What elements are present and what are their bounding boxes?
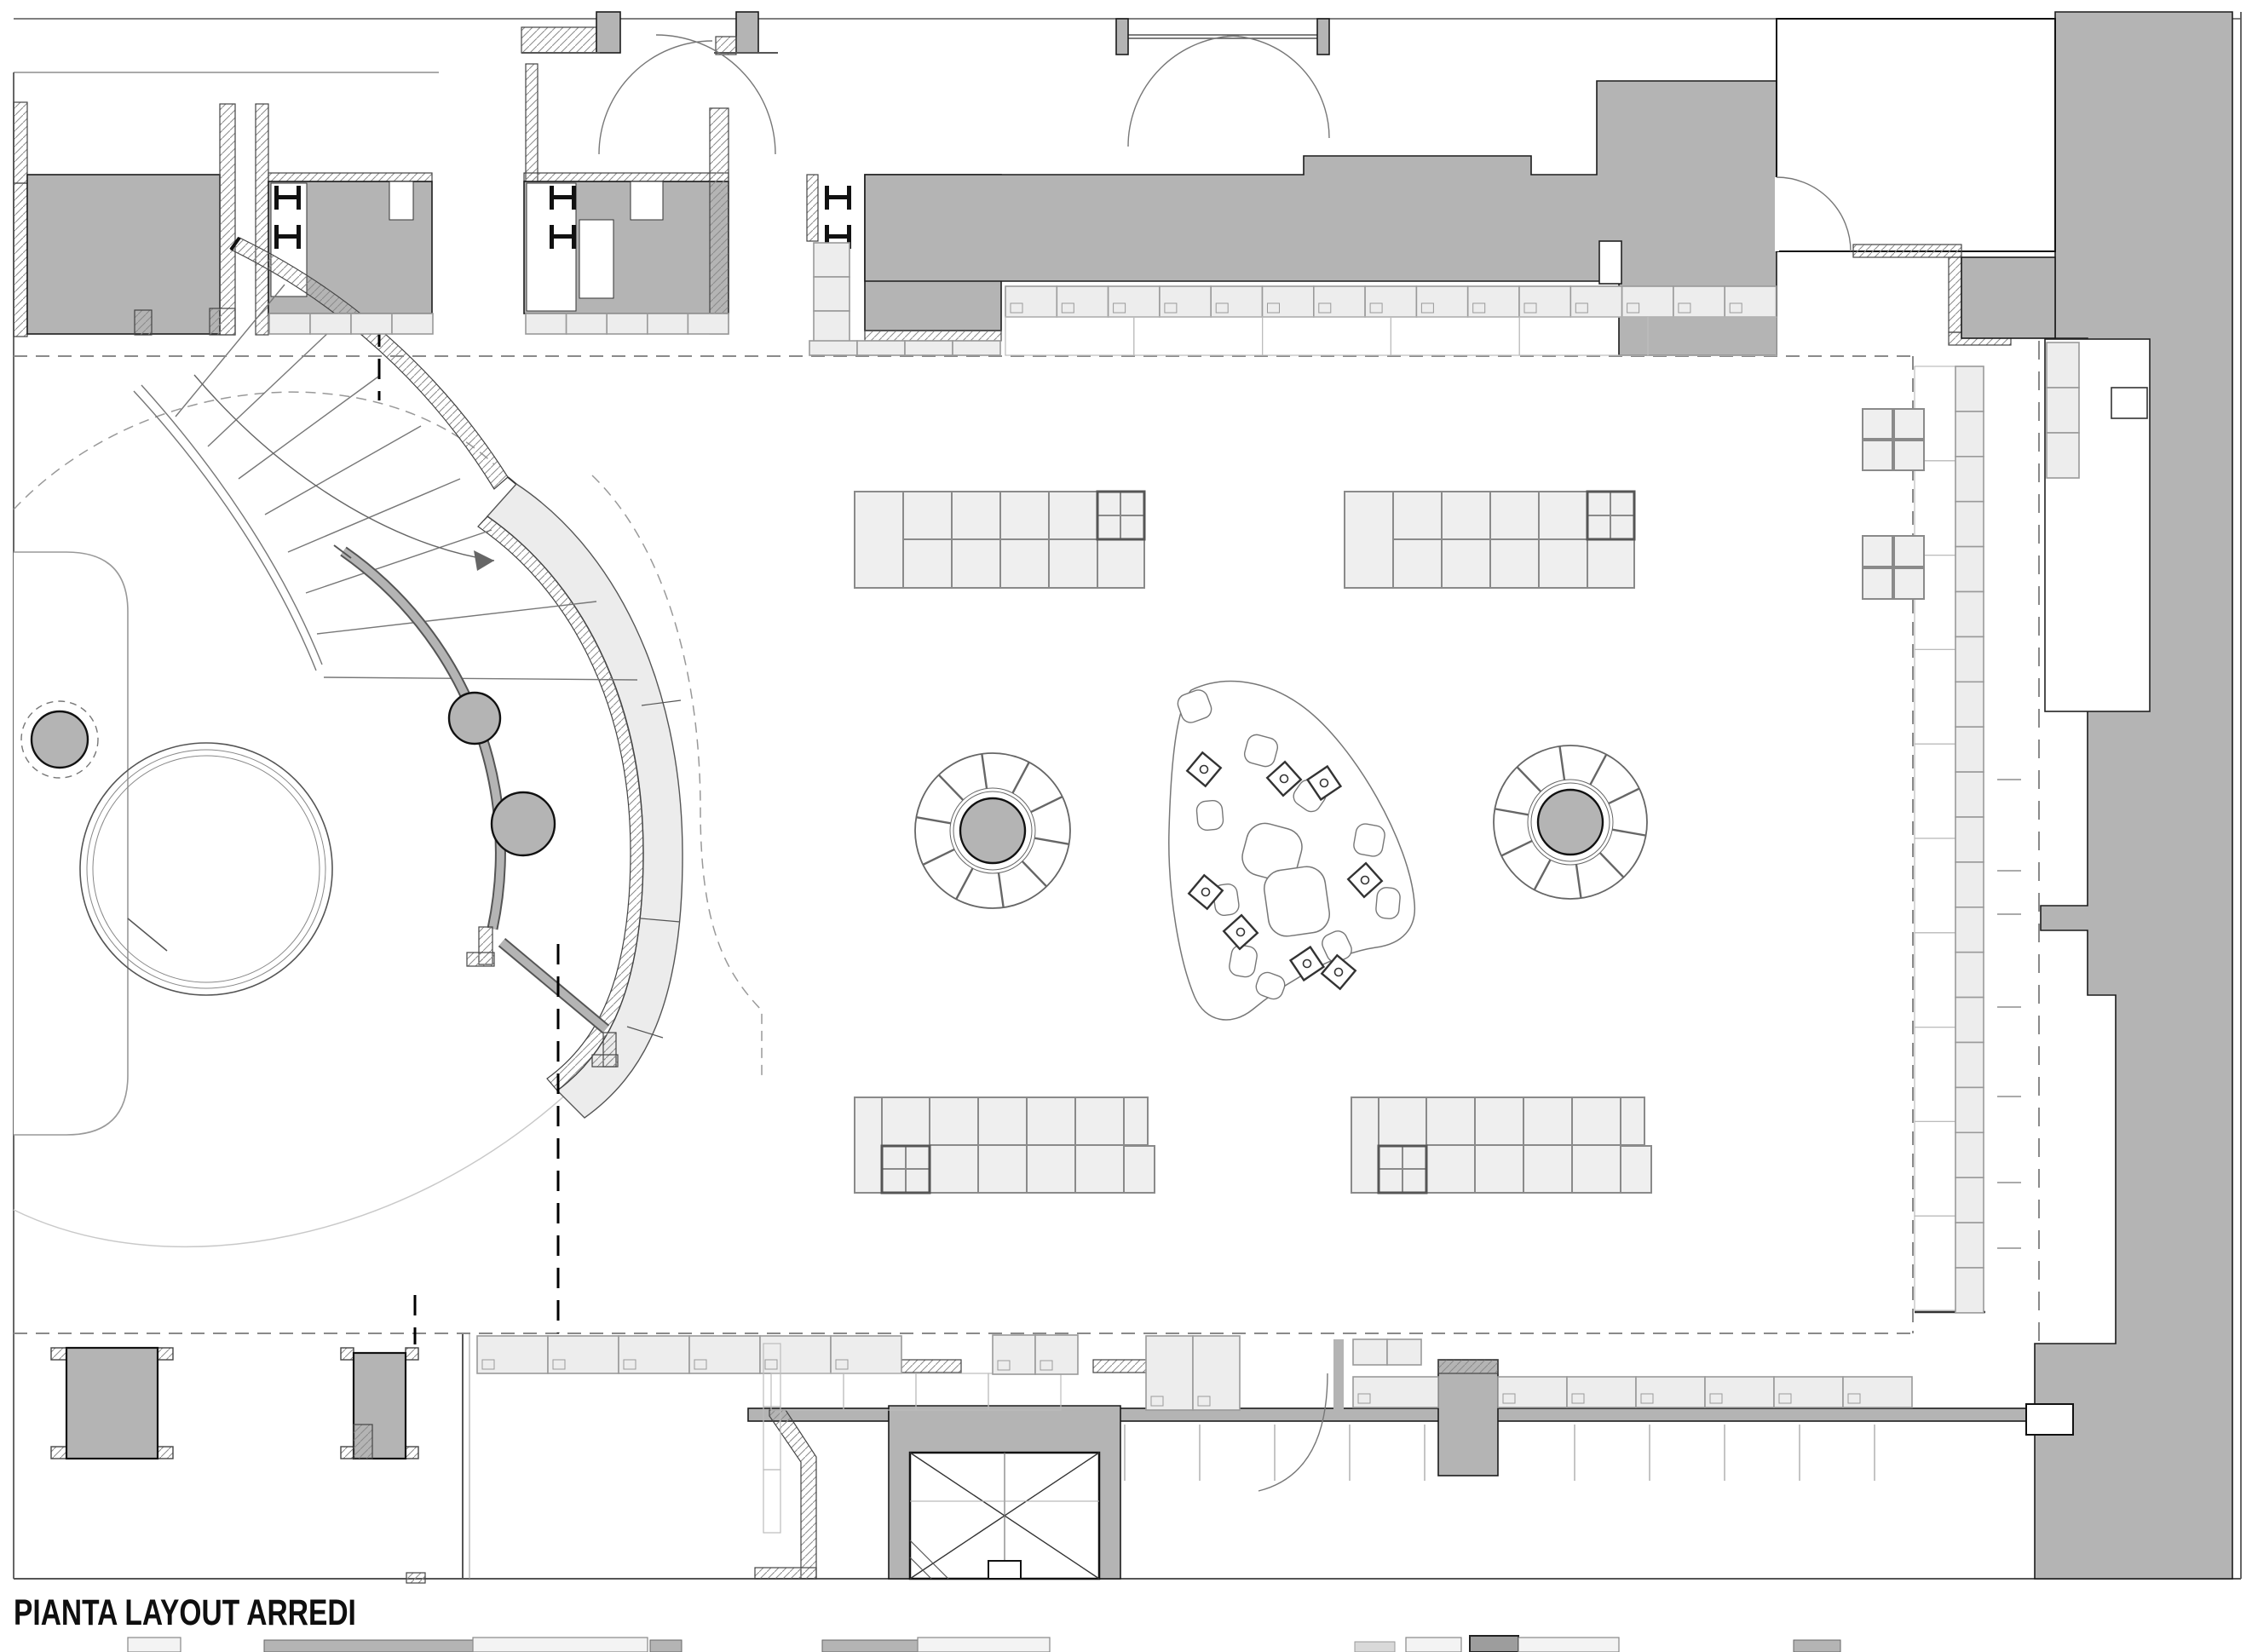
east-strip-inner-cell xyxy=(1955,953,1984,998)
display-tables-bottom-left-cell xyxy=(1075,1097,1124,1145)
east-strip-outer-cell xyxy=(1915,744,1955,838)
room-top-left xyxy=(14,102,235,337)
display-tables-bottom-left-cell xyxy=(978,1145,1027,1193)
jamb-bar xyxy=(550,234,576,239)
round-table-east-spoke xyxy=(1535,860,1551,889)
pillar-southwest-b-pad xyxy=(341,1447,354,1459)
display-tables-top-right-cell xyxy=(1610,515,1634,539)
display-tables-bottom-right-cell xyxy=(1379,1146,1402,1169)
column-counter xyxy=(32,711,88,768)
east-strip-inner-cell xyxy=(1955,592,1984,637)
wall-hatched xyxy=(521,27,596,53)
wall-hatched xyxy=(865,331,1001,341)
block-d-bottom-row-cell xyxy=(809,341,857,355)
east-strip-inner-cell xyxy=(1955,817,1984,862)
block-d-bottom-row-cell xyxy=(857,341,905,355)
display-tables-bottom-left-cell xyxy=(1075,1145,1124,1193)
table-pair-upper-cell xyxy=(1894,440,1924,470)
south-shelf-mid-cell xyxy=(1035,1335,1078,1374)
room-notch xyxy=(389,181,413,220)
door-swing-arc xyxy=(1227,36,1329,138)
south-shelf-left-2-cell xyxy=(988,1373,1061,1410)
display-tables-bottom-left-cell xyxy=(1124,1146,1155,1193)
wall-poche xyxy=(2035,12,2232,1579)
cropped-fragment xyxy=(1470,1636,1518,1652)
display-tables-bottom-right-cell xyxy=(1402,1146,1426,1169)
display-tables-top-left-cell xyxy=(1120,492,1144,515)
east-strip-inner-cell xyxy=(1955,862,1984,907)
display-tables-bottom-left-cell xyxy=(978,1097,1027,1145)
display-tables-top-right-cell xyxy=(1393,492,1442,539)
door-jamb-block xyxy=(596,12,620,53)
stair-wall-hatched xyxy=(769,1410,816,1579)
south-shelf-tall-cell xyxy=(1146,1336,1193,1410)
lounge-chair xyxy=(1196,800,1224,831)
top-wall-counter-row-cell xyxy=(1391,317,1519,355)
door-opening xyxy=(1775,177,1779,251)
door-swing-arc xyxy=(599,41,712,154)
wall-hatched xyxy=(524,173,729,181)
west-counter xyxy=(14,552,128,1135)
pillar-southwest-a xyxy=(66,1348,158,1459)
floor-plan-drawing xyxy=(0,0,2252,1652)
cropped-fragment xyxy=(473,1638,648,1652)
display-tables-bottom-right-cell xyxy=(1475,1145,1523,1193)
east-strip-inner-cell xyxy=(1955,547,1984,592)
east-white-strip-cells-cell xyxy=(2047,388,2079,433)
wall-hatched xyxy=(220,104,235,335)
spiral-staircase xyxy=(80,238,683,1118)
wall-hatched xyxy=(135,310,152,335)
east-white-strip-cells-cell xyxy=(2047,342,2079,388)
display-tables-bottom-right-cell xyxy=(1402,1169,1426,1193)
display-tables-top-right-cell xyxy=(1587,539,1634,588)
round-table-east-column xyxy=(1538,790,1603,855)
lounge-pouf xyxy=(1262,864,1332,938)
south-shelf-left-cell xyxy=(548,1336,619,1373)
door-jamb xyxy=(825,186,851,210)
east-strip-outer-cell xyxy=(1915,933,1955,1027)
display-tables-top-left-cell xyxy=(1097,539,1144,588)
east-strip-inner-cell xyxy=(1955,636,1984,682)
south-shelf-small-cell xyxy=(1387,1339,1421,1365)
display-tables-bottom-right-cell xyxy=(1379,1169,1402,1193)
display-tables-bottom-right-cell xyxy=(1351,1097,1379,1193)
round-table-west-spoke xyxy=(916,817,950,823)
room-c-shelf-cell xyxy=(526,314,567,334)
round-table-west-spoke xyxy=(1012,763,1028,793)
display-tables-top-right-cell xyxy=(1393,539,1442,588)
counter-outline xyxy=(14,552,128,1135)
block-d-shelf-col-cell xyxy=(814,277,850,311)
display-tables-top-left-cell xyxy=(855,492,903,588)
door-jamb-block xyxy=(1317,19,1329,55)
pillar-southwest-b-hatch xyxy=(354,1425,372,1459)
lounge-chair xyxy=(1352,822,1386,857)
room-c-shelf-cell xyxy=(567,314,608,334)
wall-niche xyxy=(2026,1404,2073,1435)
wall-poche xyxy=(1118,1408,2035,1421)
display-tables-top-right-cell xyxy=(1345,492,1393,588)
wall-hatched xyxy=(256,104,268,335)
east-strip-inner-cell xyxy=(1955,682,1984,727)
display-tables-bottom-left-cell xyxy=(882,1146,906,1169)
small-fixture xyxy=(2111,388,2147,418)
jamb-bar xyxy=(274,234,301,239)
east-strip-inner-cell xyxy=(1955,907,1984,953)
room-poche xyxy=(27,175,220,334)
wall-hatched xyxy=(755,1568,816,1579)
door-opening xyxy=(1599,241,1621,284)
table-pair-lower-cell xyxy=(1863,536,1892,567)
pillar-southwest-b-pad xyxy=(406,1348,418,1360)
cropped-fragment xyxy=(1794,1640,1840,1652)
plan-title: PIANTA LAYOUT ARREDI xyxy=(14,1592,356,1634)
block-d-shelf-col-cell xyxy=(814,311,850,345)
round-table-west-spoke xyxy=(923,849,954,865)
display-tables-bottom-right-cell xyxy=(1475,1097,1523,1145)
display-tables-top-left-cell xyxy=(952,539,1000,588)
pillar-southwest-a-pad xyxy=(51,1447,66,1459)
room-top-c xyxy=(524,64,729,334)
wall-hatched xyxy=(14,183,27,337)
display-tables-top-right-cell xyxy=(1539,492,1587,539)
east-strip-inner-cell xyxy=(1955,998,1984,1043)
display-tables-bottom-right-cell xyxy=(1572,1097,1621,1145)
east-strip-outer-cell xyxy=(1915,1121,1955,1216)
door-jamb-block xyxy=(1333,1339,1344,1420)
display-tables-top-right-cell xyxy=(1442,539,1490,588)
south-shelf-left-cell xyxy=(831,1336,901,1373)
display-tables-top-left-cell xyxy=(1120,515,1144,539)
display-tables-bottom-right-cell xyxy=(1523,1097,1572,1145)
east-wall-mass xyxy=(1775,12,2232,1579)
elevator-door xyxy=(988,1561,1021,1579)
round-table-east-spoke xyxy=(1495,809,1528,814)
cropped-fragment xyxy=(264,1640,473,1652)
round-table-east-spoke xyxy=(1576,865,1581,899)
table-pair-upper-cell xyxy=(1863,409,1892,439)
east-strip-inner-cell xyxy=(1955,1223,1984,1268)
south-shelf-mid-cell xyxy=(993,1335,1035,1374)
room-b-shelf-cell xyxy=(310,314,351,334)
round-table-west-spoke xyxy=(939,775,963,800)
wall-hatched xyxy=(893,1360,961,1373)
room-recess xyxy=(579,220,613,298)
east-strip-inner-cell xyxy=(1955,772,1984,817)
display-tables-bottom-right-cell xyxy=(1426,1097,1475,1145)
room-c-shelf-cell xyxy=(688,314,729,334)
table-pair-upper-cell xyxy=(1863,440,1892,470)
display-tables-bottom-right-cell xyxy=(1379,1097,1426,1146)
east-strip-outer-cell xyxy=(1915,1216,1955,1310)
south-shelf-left-cell xyxy=(477,1336,548,1373)
round-table-east-spoke xyxy=(1517,767,1541,791)
table-pair-lower-cell xyxy=(1894,536,1924,567)
display-tables-top-left-cell xyxy=(1000,539,1049,588)
east-strip-inner-cell xyxy=(1955,412,1984,457)
room-b-shelf-cell xyxy=(392,314,433,334)
cropped-fragment xyxy=(822,1640,918,1652)
display-tables-top-left-cell xyxy=(903,539,952,588)
cropped-fragment xyxy=(650,1640,682,1652)
stair-inner-edge xyxy=(134,391,316,671)
round-table-east-spoke xyxy=(1609,789,1639,804)
lounge-chair xyxy=(1375,887,1401,919)
south-shelf-left-cell xyxy=(619,1336,689,1373)
display-tables-top-left-cell xyxy=(1049,492,1097,539)
door-jamb-block xyxy=(736,12,758,53)
wall-end xyxy=(592,1055,618,1067)
east-strip-outer-cell xyxy=(1915,649,1955,744)
display-tables xyxy=(855,409,1924,1193)
entry-doors-west xyxy=(521,12,778,154)
wall-hatched xyxy=(14,102,27,183)
pillar-southwest-b-pad xyxy=(406,1447,418,1459)
display-tables-bottom-left-cell xyxy=(882,1097,930,1146)
wall-poche xyxy=(1961,257,2055,338)
wall-hatched xyxy=(716,37,736,55)
display-tables-top-left-cell xyxy=(1000,492,1049,539)
display-tables-bottom-left-cell xyxy=(906,1169,930,1193)
cropped-fragment xyxy=(1355,1642,1395,1652)
door-jamb-block xyxy=(1116,19,1128,55)
door-swing-arc xyxy=(1128,36,1239,147)
cropped-fragment xyxy=(1406,1638,1461,1652)
display-tables-top-left-cell xyxy=(903,492,952,539)
east-strip-inner-cell xyxy=(1955,1087,1984,1132)
column-stair-upper xyxy=(449,693,500,744)
round-table-east-spoke xyxy=(1590,755,1606,785)
door-swing-arc xyxy=(1258,1373,1328,1491)
display-tables-bottom-left-cell xyxy=(1124,1097,1148,1145)
round-table-east-spoke xyxy=(1501,841,1532,856)
display-tables-bottom-left-cell xyxy=(855,1097,882,1193)
wall-hatched xyxy=(710,108,729,334)
room-top-east xyxy=(1777,19,2055,251)
top-wall-counter-row-cell xyxy=(1263,317,1391,355)
east-strip-inner-cell xyxy=(1955,457,1984,502)
round-table-west-spoke xyxy=(1034,838,1068,844)
wall-hatched xyxy=(1949,257,1961,332)
dashed-canopy-arc xyxy=(14,392,494,509)
cropped-fragment xyxy=(1518,1638,1619,1652)
room-b-shelf-cell xyxy=(351,314,392,334)
structural-columns xyxy=(51,1348,418,1459)
east-white-strip-cells-cell xyxy=(2047,433,2079,478)
display-tables-top-right-cell xyxy=(1610,492,1634,515)
display-tables-top-left-cell xyxy=(1097,492,1120,515)
jamb-bar xyxy=(825,234,851,239)
display-tables-top-right-cell xyxy=(1587,515,1610,539)
room-c-shelf-cell xyxy=(648,314,688,334)
south-shelf-tall-cell xyxy=(1193,1336,1240,1410)
pillar-southwest-a-pad xyxy=(158,1348,173,1360)
display-tables-top-right-cell xyxy=(1490,492,1539,539)
round-table-east-spoke xyxy=(1612,830,1645,836)
wall-hatched xyxy=(1853,245,1961,257)
boundaries xyxy=(14,326,2039,1350)
room-notch xyxy=(631,181,663,220)
top-wall-counter-row-cell xyxy=(1134,317,1263,355)
east-strip-outer-cell xyxy=(1915,838,1955,933)
round-table-east-spoke xyxy=(1600,853,1624,878)
pillar-southwest-a-pad xyxy=(51,1348,66,1360)
cropped-fragments xyxy=(128,1573,1840,1652)
display-tables-bottom-left-cell xyxy=(882,1169,906,1193)
wall-hatched xyxy=(210,308,235,335)
room-b-shelf-cell xyxy=(269,314,310,334)
table-pair-upper-cell xyxy=(1894,409,1924,439)
display-tables-top-right-cell xyxy=(1539,539,1587,588)
south-shelf-left-cell xyxy=(689,1336,760,1373)
south-shelf-left-cell xyxy=(760,1336,831,1373)
south-shelf-left-2-cell xyxy=(916,1373,988,1410)
display-tables-top-right-cell xyxy=(1587,492,1610,515)
display-tables-bottom-left-cell xyxy=(930,1145,978,1193)
display-tables-top-right-cell xyxy=(1442,492,1490,539)
south-shelf-left-2-cell xyxy=(771,1373,844,1410)
display-tables-bottom-left-cell xyxy=(1027,1097,1075,1145)
jamb-bar xyxy=(274,195,301,199)
south-shelf-left-2-cell xyxy=(844,1373,916,1410)
elevator-left-col-cell xyxy=(763,1470,780,1533)
table-pair-lower-cell xyxy=(1894,568,1924,599)
display-tables-top-left-cell xyxy=(1049,539,1097,588)
east-strip-inner-cell xyxy=(1955,1268,1984,1313)
round-table-west-column xyxy=(960,798,1025,863)
lounge-area xyxy=(1169,682,1415,1020)
wall-hatched xyxy=(807,175,818,241)
round-table-west-spoke xyxy=(1022,861,1046,886)
floor-plan-sheet: PIANTA LAYOUT ARREDI xyxy=(0,0,2252,1652)
jamb-bar xyxy=(825,195,851,199)
south-shelf-small-cell xyxy=(1353,1339,1387,1365)
block-d-bottom-row-cell xyxy=(953,341,1000,355)
display-tables-top-left-cell xyxy=(1097,515,1120,539)
east-strip-inner-cell xyxy=(1955,1043,1984,1088)
jamb-bar xyxy=(550,195,576,199)
east-strip-inner-cell xyxy=(1955,727,1984,772)
display-tables-bottom-left-cell xyxy=(906,1146,930,1169)
round-table-west-spoke xyxy=(999,873,1004,908)
east-strip-inner-cell xyxy=(1955,1177,1984,1223)
elevator xyxy=(910,1453,1099,1579)
east-strip-inner-cell xyxy=(1955,1132,1984,1177)
display-tables-top-right-cell xyxy=(1490,539,1539,588)
wall-end xyxy=(467,953,494,966)
display-tables-bottom-left-cell xyxy=(930,1097,978,1145)
top-wall-counter-row-cell xyxy=(1005,317,1134,355)
pillar-southwest-b-pad xyxy=(341,1348,354,1360)
display-tables-bottom-left-cell xyxy=(1027,1145,1075,1193)
display-tables-bottom-right-cell xyxy=(1426,1145,1475,1193)
room-c-shelf-cell xyxy=(607,314,648,334)
round-table-west-spoke xyxy=(956,868,972,899)
wall-hatched xyxy=(1438,1360,1498,1373)
cropped-fragment xyxy=(128,1638,181,1652)
east-strip-outer-cell xyxy=(1915,1027,1955,1122)
column-stair-lower xyxy=(492,792,555,855)
pillar-southwest-a-pad xyxy=(158,1447,173,1459)
cropped-fragment xyxy=(918,1638,1050,1652)
block-d-bottom-row-cell xyxy=(905,341,953,355)
round-table-east-spoke xyxy=(1559,746,1564,780)
display-tables-bottom-right-cell xyxy=(1621,1097,1644,1145)
display-tables-top-left-cell xyxy=(952,492,1000,539)
wall-hatched xyxy=(268,173,432,181)
block-d-shelf-col-cell xyxy=(814,243,850,277)
display-tables-bottom-right-cell xyxy=(1523,1145,1572,1193)
table-pair-lower-cell xyxy=(1863,568,1892,599)
display-tables-bottom-right-cell xyxy=(1572,1145,1621,1193)
round-table-west-spoke xyxy=(1031,797,1063,812)
pillar-south xyxy=(1438,1360,1498,1476)
round-table-west-spoke xyxy=(982,754,987,789)
stair-walk-arrow xyxy=(474,550,494,571)
east-strip-inner-cell xyxy=(1955,502,1984,547)
display-tables-bottom-right-cell xyxy=(1621,1146,1651,1193)
east-strip-inner-cell xyxy=(1955,366,1984,412)
